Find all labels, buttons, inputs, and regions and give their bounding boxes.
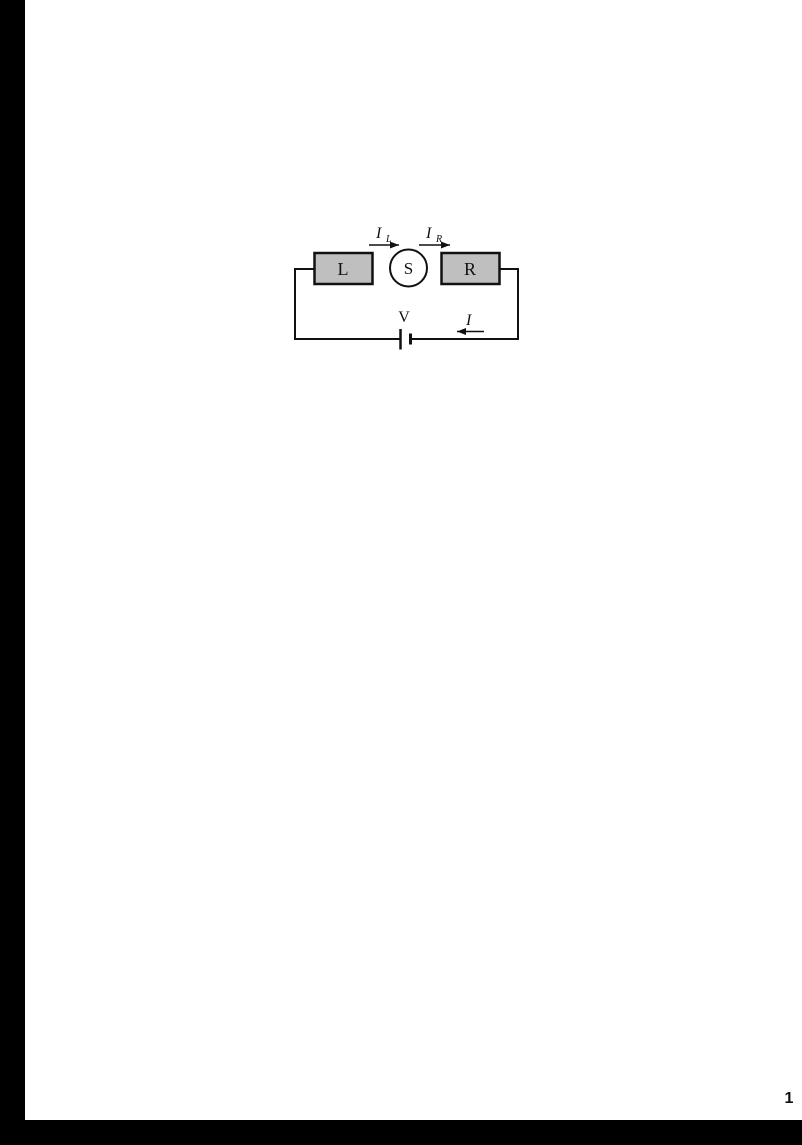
current-IR-subscript: R	[435, 234, 442, 245]
left-lead-label: L	[338, 259, 349, 279]
current-IL-symbol: I	[375, 225, 382, 242]
current-I-symbol: I	[465, 312, 472, 329]
circuit-diagram: V L S R I L I R I	[0, 0, 802, 1145]
current-IL-subscript: L	[385, 234, 392, 245]
right-lead-label: R	[464, 259, 476, 279]
battery-voltage-label: V	[398, 309, 410, 326]
sample-label: S	[404, 259, 413, 278]
page-number: 1	[781, 1090, 797, 1108]
document-page: V L S R I L I R I 1	[0, 0, 802, 1145]
current-IR-symbol: I	[425, 225, 432, 242]
